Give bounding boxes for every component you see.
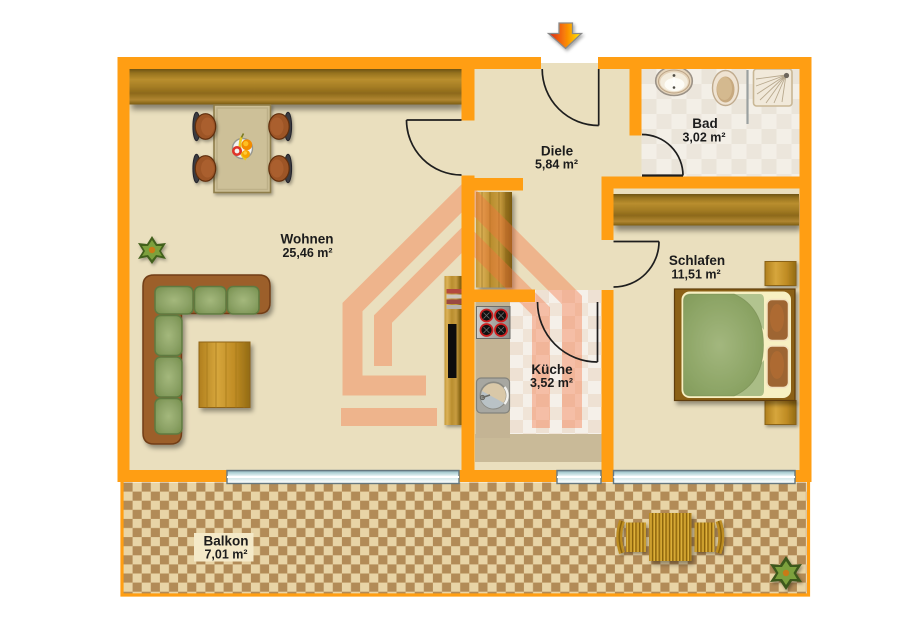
svg-text:5,84 m²: 5,84 m² xyxy=(535,158,578,172)
svg-text:Schlafen: Schlafen xyxy=(669,253,725,268)
svg-text:3,02 m²: 3,02 m² xyxy=(682,131,725,145)
svg-text:Küche: Küche xyxy=(531,362,573,377)
svg-text:Diele: Diele xyxy=(541,144,574,159)
svg-text:7,01 m²: 7,01 m² xyxy=(204,548,247,562)
svg-text:11,51 m²: 11,51 m² xyxy=(671,268,720,282)
svg-text:25,46 m²: 25,46 m² xyxy=(282,246,332,260)
svg-text:3,52 m²: 3,52 m² xyxy=(530,376,573,390)
svg-text:Wohnen: Wohnen xyxy=(281,232,334,247)
svg-text:Balkon: Balkon xyxy=(203,534,248,549)
svg-text:Bad: Bad xyxy=(692,116,718,131)
